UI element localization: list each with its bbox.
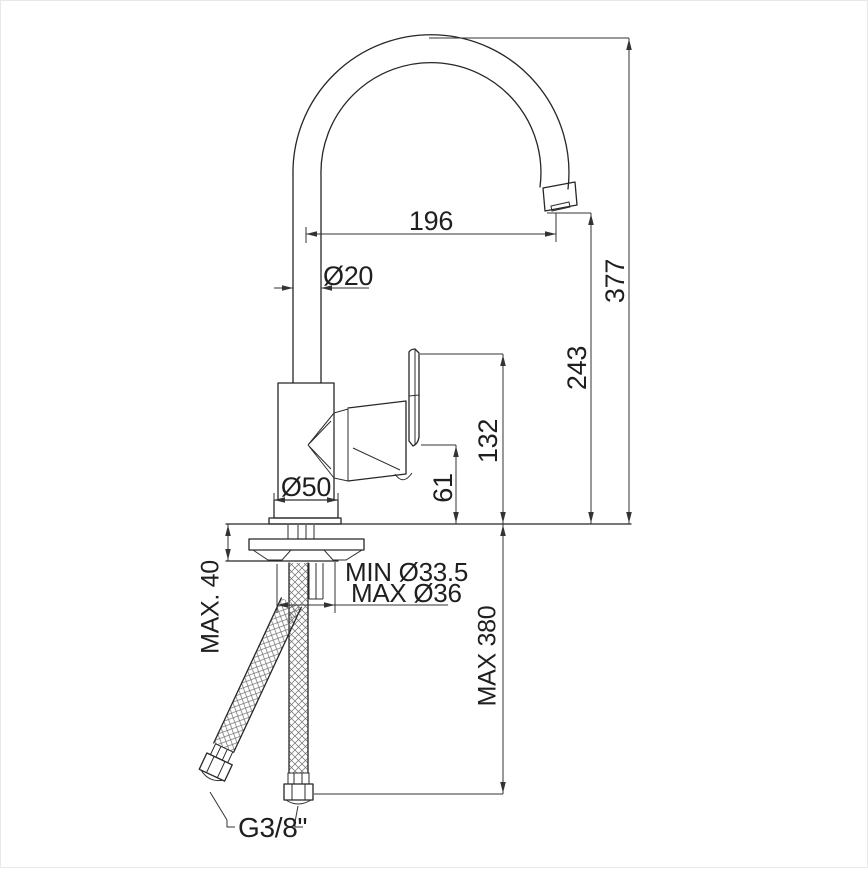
dim-label-spout-reach: 196 xyxy=(409,206,453,236)
dim-label-hose-thread: G3/8" xyxy=(238,812,307,843)
technical-drawing-page: 196 Ø20 377 243 132 61 Ø50 MAX. 40 MIN Ø… xyxy=(0,0,868,868)
dim-label-outlet-height: 243 xyxy=(562,346,592,390)
faucet-technical-drawing: 196 Ø20 377 243 132 61 Ø50 MAX. 40 MIN Ø… xyxy=(1,1,868,869)
dimension-deck-thickness xyxy=(225,524,231,561)
mounting-stud xyxy=(309,563,323,599)
dim-label-base-diameter: Ø50 xyxy=(281,472,331,502)
dim-label-spout-diameter: Ø20 xyxy=(323,261,373,291)
dim-label-hole-max: MAX Ø36 xyxy=(351,578,462,608)
supply-hose-center xyxy=(284,563,313,804)
lever-handle xyxy=(409,349,419,446)
dim-label-body-height: 61 xyxy=(428,473,458,502)
valve-cone xyxy=(308,409,348,481)
dim-label-hose-length: MAX 380 xyxy=(474,606,502,707)
dim-label-handle-height: 132 xyxy=(473,419,503,463)
dim-label-total-height: 377 xyxy=(600,259,630,303)
valve-cylinder xyxy=(348,401,412,481)
spout-nozzle xyxy=(543,182,577,211)
dim-label-deck-thickness: MAX. 40 xyxy=(197,560,225,654)
base-flange xyxy=(269,500,341,524)
mounting-shank xyxy=(288,525,314,539)
